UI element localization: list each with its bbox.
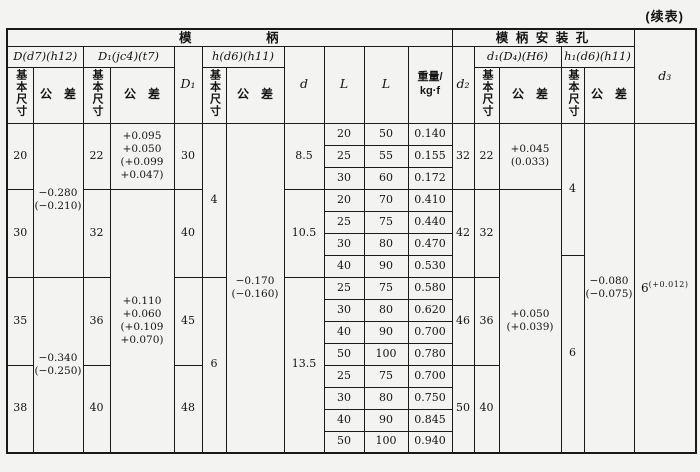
L2-cell: 90 [364, 321, 408, 343]
D1-basic-cell: 40 [83, 365, 110, 453]
basic-size-label: 基本尺寸 [567, 69, 578, 117]
fit-header-h1: h₁(d6)(h11) [561, 46, 634, 67]
h-basic-cell: 4 [202, 123, 226, 277]
L2-cell: 100 [364, 343, 408, 365]
continued-note: (续表) [645, 6, 684, 25]
L1-cell: 25 [324, 145, 364, 167]
tolerance-header-d1: 公 差 [499, 67, 561, 123]
D1-flange-cell: 48 [174, 365, 202, 453]
L2-cell: 90 [364, 409, 408, 431]
d1-basic-cell: 22 [474, 123, 499, 189]
basic-size-label: 基本尺寸 [15, 69, 26, 117]
D-basic-cell: 20 [7, 123, 33, 189]
tolerance-header-h: 公 差 [226, 67, 284, 123]
D1-basic-cell: 36 [83, 277, 110, 365]
col-header-L1: L [324, 46, 364, 123]
weight-cell: 0.410 [408, 189, 452, 211]
fit-header-d1: d₁(D₄)(H6) [474, 46, 561, 67]
D-basic-cell: 30 [7, 189, 33, 277]
col-header-weight: 重量/ kg·f [408, 46, 452, 123]
basic-size-label: 基本尺寸 [91, 69, 102, 117]
D1-tolerance-cell: +0.095 +0.050 (+0.099 +0.047) [110, 123, 174, 189]
L2-cell: 75 [364, 211, 408, 233]
L1-cell: 40 [324, 321, 364, 343]
d-cell: 8.5 [284, 123, 324, 189]
D1-basic-cell: 22 [83, 123, 110, 189]
D-basic-cell: 35 [7, 277, 33, 365]
weight-cell: 0.440 [408, 211, 452, 233]
weight-cell: 0.780 [408, 343, 452, 365]
L2-cell: 100 [364, 431, 408, 453]
L1-cell: 20 [324, 189, 364, 211]
d3-base-value: 6 [641, 281, 649, 295]
d1-basic-cell: 32 [474, 189, 499, 277]
weight-cell: 0.700 [408, 365, 452, 387]
die-shank-spec-table: 模 柄 模 柄 安 装 孔 d₃ D(d7)(h12) D₁(jc4)(t7) … [6, 28, 697, 454]
D-basic-cell: 38 [7, 365, 33, 453]
L2-cell: 80 [364, 233, 408, 255]
L2-cell: 70 [364, 189, 408, 211]
L1-cell: 25 [324, 365, 364, 387]
d3-tolerance-sup: (+0.012) [649, 280, 689, 289]
group-header-mounting-hole: 模 柄 安 装 孔 [452, 29, 634, 46]
L2-cell: 55 [364, 145, 408, 167]
L1-cell: 40 [324, 255, 364, 277]
D-tolerance-cell: −0.280 (−0.210) [33, 123, 83, 277]
d1-tolerance-cell: +0.045 (0.033) [499, 123, 561, 189]
weight-cell: 0.580 [408, 277, 452, 299]
h1-basic-cell: 6 [561, 255, 584, 453]
basic-size-header-d1: 基本尺寸 [474, 67, 499, 123]
basic-size-header-D1: 基本尺寸 [83, 67, 110, 123]
basic-size-label: 基本尺寸 [209, 69, 220, 117]
d2-cell: 42 [452, 189, 474, 277]
weight-cell: 0.140 [408, 123, 452, 145]
scanned-table-page: (续表) 模 柄 模 柄 安 装 孔 d₃ D(d7)(h12) D₁(jc4)… [0, 0, 700, 472]
D1-flange-cell: 30 [174, 123, 202, 189]
D1-basic-cell: 32 [83, 189, 110, 277]
d3-value-cell: 6(+0.012) [634, 123, 696, 453]
col-header-d2: d₂ [452, 46, 474, 123]
L2-cell: 80 [364, 387, 408, 409]
basic-size-header-h: 基本尺寸 [202, 67, 226, 123]
L1-cell: 20 [324, 123, 364, 145]
L1-cell: 25 [324, 277, 364, 299]
col-header-d3: d₃ [634, 29, 696, 123]
fit-header-D: D(d7)(h12) [7, 46, 83, 67]
weight-cell: 0.940 [408, 431, 452, 453]
group-header-die-shank: 模 柄 [7, 29, 452, 46]
basic-size-header-h1: 基本尺寸 [561, 67, 584, 123]
L2-cell: 90 [364, 255, 408, 277]
L1-cell: 30 [324, 387, 364, 409]
col-header-L2: L [364, 46, 408, 123]
weight-cell: 0.750 [408, 387, 452, 409]
d-cell: 10.5 [284, 189, 324, 277]
weight-cell: 0.470 [408, 233, 452, 255]
D1-flange-cell: 40 [174, 189, 202, 277]
L1-cell: 50 [324, 343, 364, 365]
h1-basic-cell: 4 [561, 123, 584, 255]
weight-cell: 0.700 [408, 321, 452, 343]
d1-tolerance-cell: +0.050 (+0.039) [499, 189, 561, 453]
weight-cell: 0.172 [408, 167, 452, 189]
D1-flange-cell: 45 [174, 277, 202, 365]
tolerance-header-h1: 公 差 [584, 67, 634, 123]
L1-cell: 30 [324, 299, 364, 321]
L1-cell: 25 [324, 211, 364, 233]
L2-cell: 75 [364, 277, 408, 299]
d1-basic-cell: 40 [474, 365, 499, 453]
L2-cell: 60 [364, 167, 408, 189]
fit-header-D1: D₁(jc4)(t7) [83, 46, 174, 67]
weight-cell: 0.620 [408, 299, 452, 321]
col-header-d: d [284, 46, 324, 123]
L1-cell: 30 [324, 167, 364, 189]
d1-basic-cell: 36 [474, 277, 499, 365]
d-cell: 13.5 [284, 277, 324, 453]
D1-tolerance-cell: +0.110 +0.060 (+0.109 +0.070) [110, 189, 174, 453]
d2-cell: 50 [452, 365, 474, 453]
L2-cell: 75 [364, 365, 408, 387]
L2-cell: 50 [364, 123, 408, 145]
L1-cell: 30 [324, 233, 364, 255]
weight-cell: 0.530 [408, 255, 452, 277]
fit-header-h: h(d6)(h11) [202, 46, 284, 67]
D-tolerance-cell: −0.340 (−0.250) [33, 277, 83, 453]
L1-cell: 40 [324, 409, 364, 431]
d2-cell: 46 [452, 277, 474, 365]
d2-cell: 32 [452, 123, 474, 189]
L1-cell: 50 [324, 431, 364, 453]
tolerance-header-D: 公 差 [33, 67, 83, 123]
weight-cell: 0.155 [408, 145, 452, 167]
L2-cell: 80 [364, 299, 408, 321]
col-header-D1: D₁ [174, 46, 202, 123]
h1-tolerance-cell: −0.080 (−0.075) [584, 123, 634, 453]
weight-cell: 0.845 [408, 409, 452, 431]
h-tolerance-cell: −0.170 (−0.160) [226, 123, 284, 453]
basic-size-label: 基本尺寸 [481, 69, 492, 117]
h-basic-cell: 6 [202, 277, 226, 453]
basic-size-header-D: 基本尺寸 [7, 67, 33, 123]
tolerance-header-D1: 公 差 [110, 67, 174, 123]
